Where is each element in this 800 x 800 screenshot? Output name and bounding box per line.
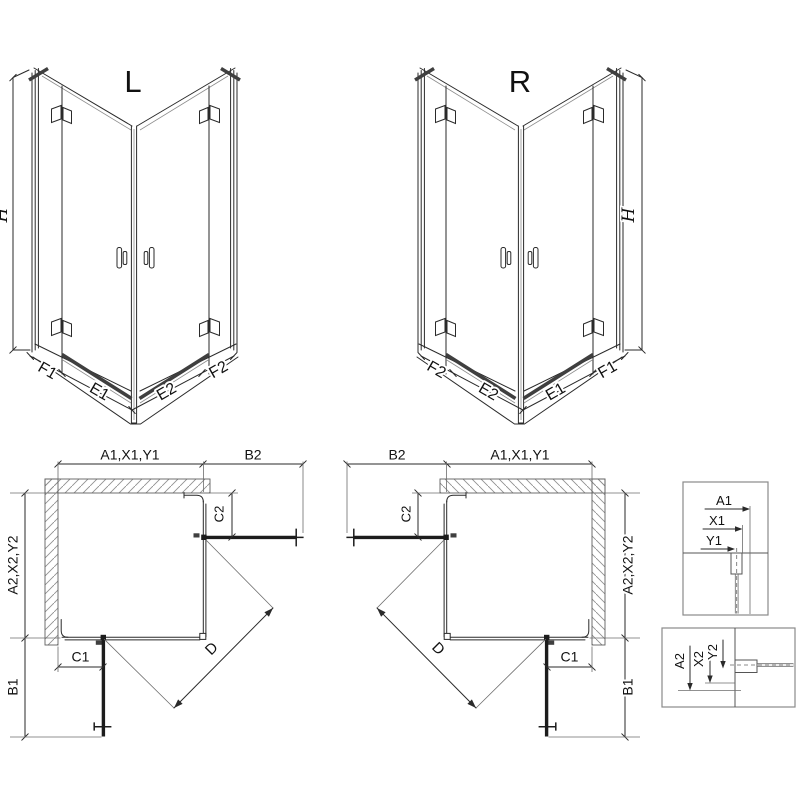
dim-label-e2-left: E2	[154, 380, 180, 405]
iso-view-right: R H F2 E2 E1 F1	[415, 64, 645, 424]
dim-label-h-left: H	[0, 206, 12, 223]
dim-label-f1-left: F1	[35, 359, 60, 383]
plan-left-dim-b1: B1	[5, 678, 21, 695]
shower-enclosure-dimension-diagram: L H F1 E1 E2 F2 R H F2 E2 E1 F1 A1,X1,Y1…	[0, 0, 800, 800]
plan-right-dim-a2x2y2: A2,X2,Y2	[620, 535, 636, 594]
plan-left-dim-a1x1y1: A1,X1,Y1	[100, 447, 159, 463]
plan-right-dim-b2: B2	[388, 447, 405, 463]
detail-top-dim-a1: A1	[716, 493, 732, 508]
plan-view-right: B2 A1,X1,Y1 A2,X2,Y2 B1 C2 C1 D	[344, 447, 640, 741]
plan-left-dim-c2: C2	[212, 506, 227, 523]
plan-right-dim-c1: C1	[561, 649, 579, 665]
plan-right-dim-b1: B1	[620, 678, 636, 695]
detail-bottom-dim-y2: Y2	[705, 644, 720, 660]
plan-right-dim-d: D	[428, 639, 448, 659]
detail-top-dim-x1: X1	[709, 513, 725, 528]
detail-bottom-dim-a2: A2	[672, 653, 687, 669]
plan-right-dim-a1x1y1: A1,X1,Y1	[490, 447, 549, 463]
dim-label-f2-left: F2	[206, 358, 231, 382]
iso-left-title: L	[124, 64, 141, 99]
detail-bottom-dim-x2: X2	[691, 651, 706, 667]
dim-label-f2-right: F2	[424, 358, 449, 382]
dim-label-f1-right: F1	[595, 358, 620, 382]
plan-right-dim-c2: C2	[399, 506, 414, 523]
technical-drawing-page: L H F1 E1 E2 F2 R H F2 E2 E1 F1 A1,X1,Y1…	[0, 0, 800, 800]
dim-label-e2-right: E2	[476, 380, 502, 405]
iso-right-title: R	[509, 64, 531, 99]
plan-left-dim-b2: B2	[244, 447, 261, 463]
plan-left-dim-d: D	[202, 639, 222, 659]
iso-view-left: L H F1 E1 E2 F2	[0, 64, 240, 424]
detail-view-top: A1 X1 Y1	[683, 482, 768, 615]
detail-view-bottom: A2 X2 Y2	[662, 628, 795, 707]
detail-top-dim-y1: Y1	[706, 533, 722, 548]
plan-view-left: A1,X1,Y1 B2 A2,X2,Y2 B1 C2 C1 D	[5, 447, 307, 741]
dim-label-h-right: H	[619, 206, 639, 223]
plan-left-dim-a2x2y2: A2,X2,Y2	[5, 535, 21, 594]
plan-left-dim-c1: C1	[72, 649, 90, 665]
